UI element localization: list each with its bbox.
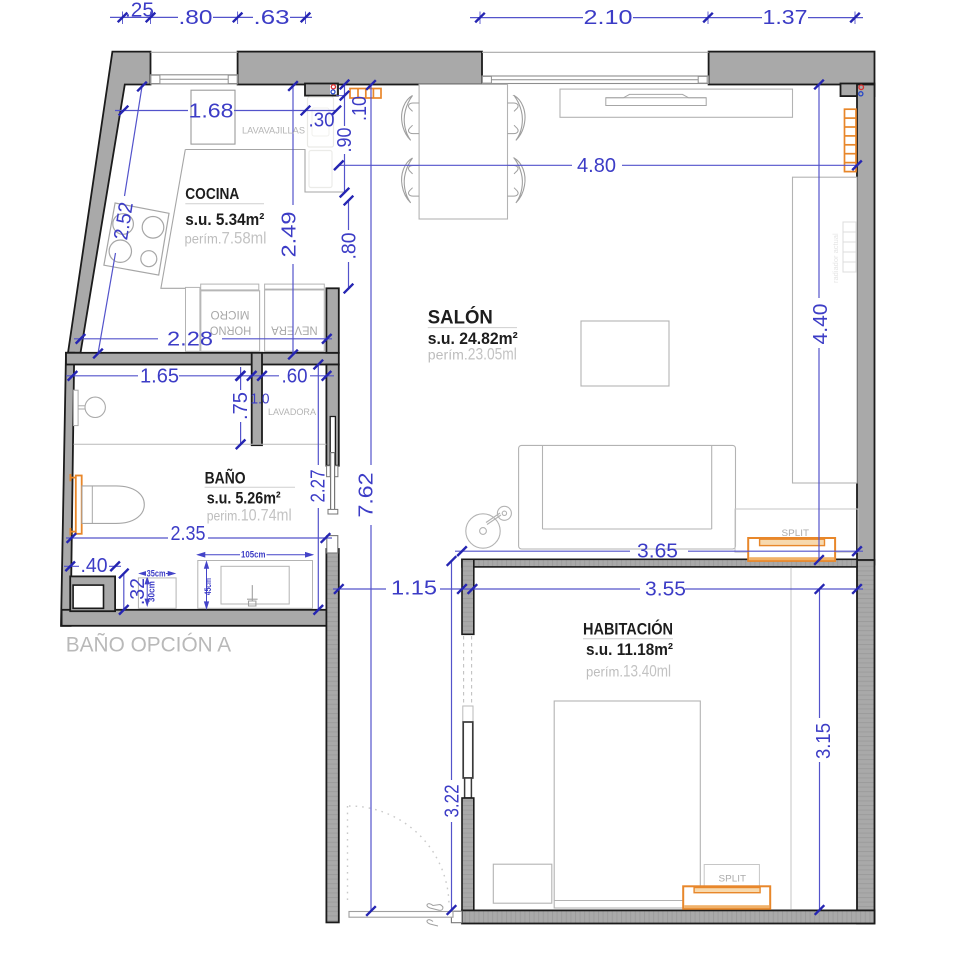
svg-text:perím.13.40ml: perím.13.40ml bbox=[586, 663, 671, 681]
svg-text:radiador actual: radiador actual bbox=[831, 233, 840, 283]
svg-text:30cm: 30cm bbox=[147, 581, 158, 602]
svg-text:.10: .10 bbox=[349, 96, 371, 121]
svg-text:2.10: 2.10 bbox=[584, 7, 633, 29]
svg-text:perim.10.74ml: perim.10.74ml bbox=[207, 507, 292, 525]
svg-text:.80: .80 bbox=[179, 7, 213, 29]
svg-text:s.u. 5.26m²: s.u. 5.26m² bbox=[207, 489, 281, 508]
svg-text:perím.23.05ml: perím.23.05ml bbox=[428, 346, 517, 364]
svg-text:35cm: 35cm bbox=[147, 568, 166, 579]
svg-text:3.55: 3.55 bbox=[645, 579, 686, 601]
svg-text:HABITACIÓN: HABITACIÓN bbox=[583, 620, 673, 639]
svg-text:SALÓN: SALÓN bbox=[428, 307, 493, 329]
svg-text:7.62: 7.62 bbox=[356, 473, 378, 518]
svg-text:s.u. 11.18m²: s.u. 11.18m² bbox=[586, 640, 673, 659]
svg-text:.80: .80 bbox=[339, 233, 361, 260]
svg-text:LAVADORA: LAVADORA bbox=[268, 407, 317, 418]
svg-text:.25: .25 bbox=[125, 0, 154, 22]
svg-text:.60: .60 bbox=[282, 365, 308, 387]
svg-text:1.68: 1.68 bbox=[189, 100, 234, 122]
svg-text:MICRO: MICRO bbox=[210, 308, 249, 322]
svg-text:NEVERA: NEVERA bbox=[270, 323, 317, 337]
svg-text:2.27: 2.27 bbox=[308, 470, 330, 503]
svg-text:2.35: 2.35 bbox=[171, 523, 206, 545]
svg-text:4.40: 4.40 bbox=[810, 304, 832, 345]
svg-text:.90: .90 bbox=[334, 128, 356, 153]
svg-text:s.u. 5.34m²: s.u. 5.34m² bbox=[185, 210, 264, 229]
svg-text:BAÑO OPCIÓN A: BAÑO OPCIÓN A bbox=[66, 632, 232, 657]
svg-text:45cm: 45cm bbox=[203, 578, 214, 595]
svg-text:.75: .75 bbox=[230, 392, 252, 420]
svg-text:1.15: 1.15 bbox=[391, 578, 437, 600]
svg-text:3.15: 3.15 bbox=[813, 723, 835, 759]
svg-text:105cm: 105cm bbox=[241, 550, 266, 561]
svg-text:1.65: 1.65 bbox=[140, 365, 179, 387]
svg-text:.40: .40 bbox=[81, 555, 108, 577]
svg-text:LAVAVAJILLAS: LAVAVAJILLAS bbox=[242, 126, 305, 137]
svg-text:.63: .63 bbox=[254, 7, 290, 29]
svg-text:COCINA: COCINA bbox=[185, 186, 239, 203]
svg-text:SPLIT: SPLIT bbox=[719, 874, 747, 885]
svg-text:1.0: 1.0 bbox=[251, 392, 270, 408]
svg-text:2.49: 2.49 bbox=[279, 212, 301, 258]
svg-text:4.80: 4.80 bbox=[577, 155, 616, 177]
svg-text:HORNO: HORNO bbox=[209, 323, 251, 337]
svg-text:.30: .30 bbox=[309, 110, 335, 132]
svg-text:perím.7.58ml: perím.7.58ml bbox=[185, 230, 267, 248]
svg-text:3.22: 3.22 bbox=[442, 785, 464, 818]
svg-text:2.28: 2.28 bbox=[167, 329, 213, 351]
svg-text:1.37: 1.37 bbox=[763, 7, 808, 29]
svg-text:BAÑO: BAÑO bbox=[205, 468, 246, 488]
svg-text:3.65: 3.65 bbox=[637, 541, 678, 563]
